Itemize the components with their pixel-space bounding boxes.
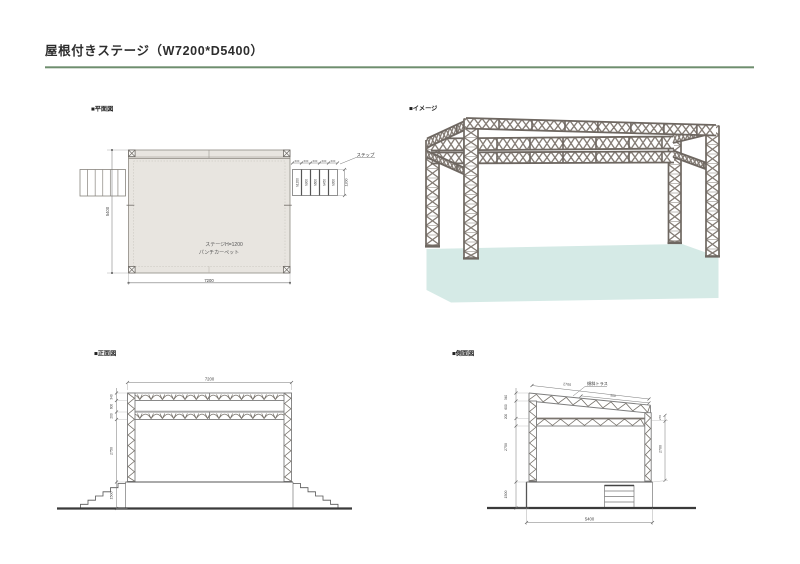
svg-text:7200: 7200 — [204, 278, 214, 283]
svg-text:ステージH=1200: ステージH=1200 — [205, 242, 243, 248]
svg-text:600: 600 — [331, 159, 336, 163]
svg-text:600: 600 — [504, 404, 508, 410]
svg-text:5400: 5400 — [585, 517, 595, 522]
svg-text:■正面図: ■正面図 — [94, 350, 116, 358]
svg-text:h1200: h1200 — [295, 178, 299, 187]
svg-text:1200: 1200 — [345, 179, 349, 187]
svg-text:■イメージ: ■イメージ — [409, 106, 438, 113]
svg-text:600: 600 — [295, 159, 300, 163]
svg-text:270: 270 — [658, 415, 662, 420]
svg-text:7200: 7200 — [205, 377, 215, 382]
svg-text:200: 200 — [504, 414, 508, 420]
svg-text:h900: h900 — [304, 179, 308, 186]
svg-text:2750: 2750 — [110, 447, 114, 455]
svg-text:600: 600 — [313, 159, 318, 163]
svg-text:340: 340 — [504, 395, 508, 401]
svg-text:200: 200 — [110, 413, 114, 419]
svg-text:600: 600 — [110, 404, 114, 410]
svg-text:パンチカーペット: パンチカーペット — [199, 250, 239, 256]
svg-text:900: 900 — [610, 394, 616, 399]
svg-text:h450: h450 — [322, 179, 326, 186]
svg-text:1500: 1500 — [504, 491, 508, 499]
svg-text:傾斜トラス: 傾斜トラス — [587, 380, 608, 387]
svg-text:340: 340 — [110, 394, 114, 400]
svg-text:5400: 5400 — [105, 206, 110, 216]
svg-text:■平面図: ■平面図 — [91, 105, 113, 113]
svg-text:h600: h600 — [313, 179, 317, 186]
svg-text:屋根付きステージ（W7200*D5400）: 屋根付きステージ（W7200*D5400） — [45, 43, 264, 58]
svg-text:■側面図: ■側面図 — [452, 350, 474, 358]
svg-text:2700: 2700 — [659, 445, 663, 453]
svg-text:600: 600 — [322, 159, 327, 163]
svg-text:600: 600 — [304, 159, 309, 163]
svg-text:h300: h300 — [331, 179, 335, 186]
svg-text:1500: 1500 — [110, 492, 114, 500]
svg-text:2750: 2750 — [504, 443, 508, 451]
svg-text:2700: 2700 — [563, 382, 571, 387]
